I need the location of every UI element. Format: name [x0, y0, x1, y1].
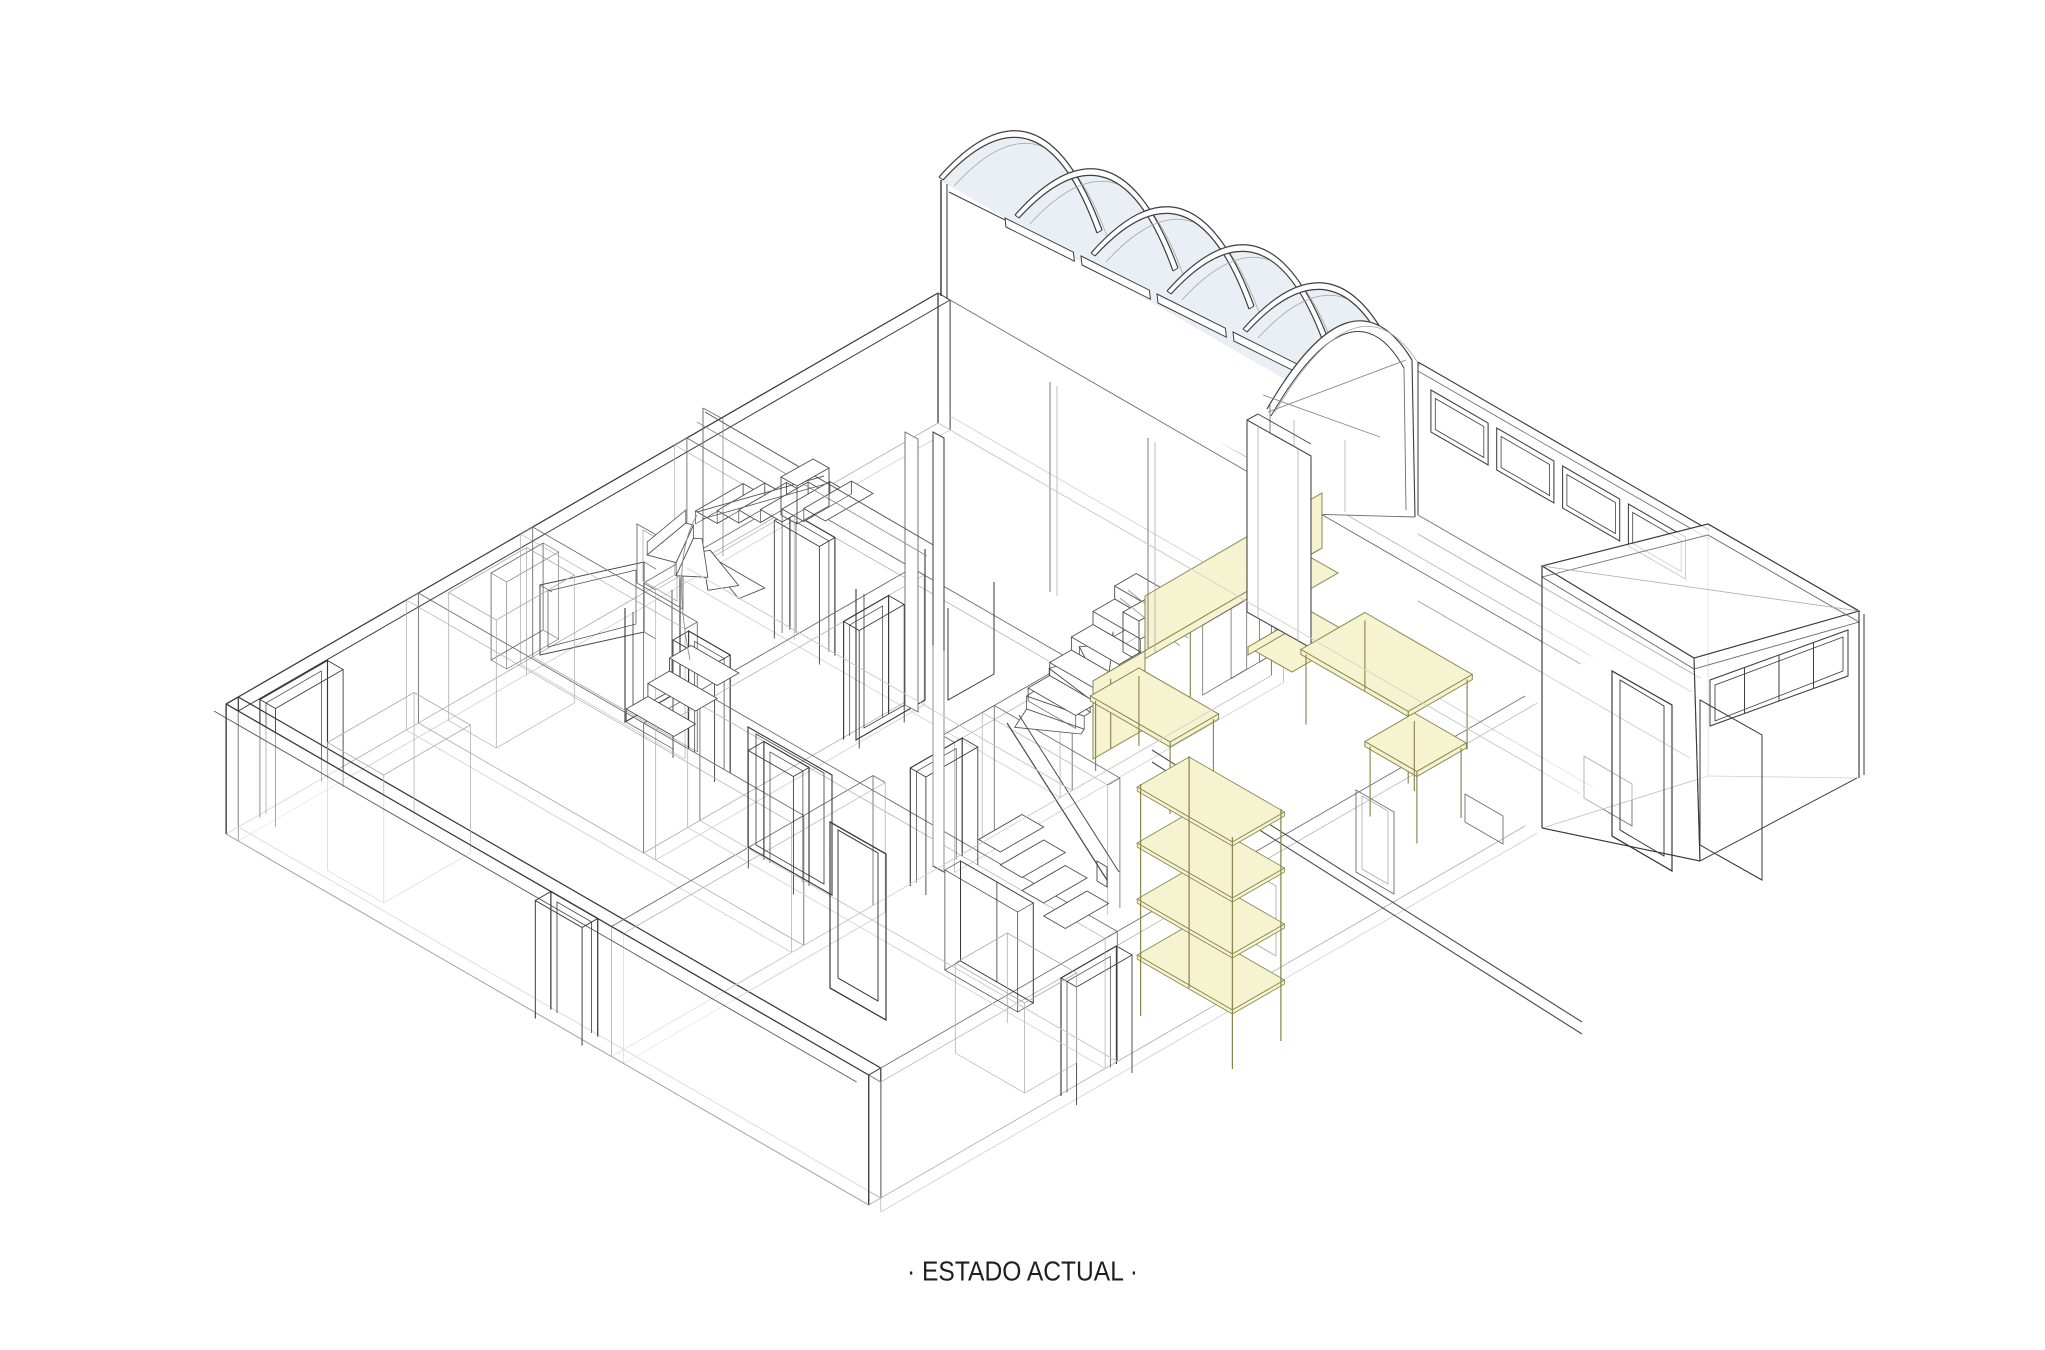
svg-text:· ESTADO ACTUAL ·: · ESTADO ACTUAL ·	[907, 1256, 1138, 1287]
